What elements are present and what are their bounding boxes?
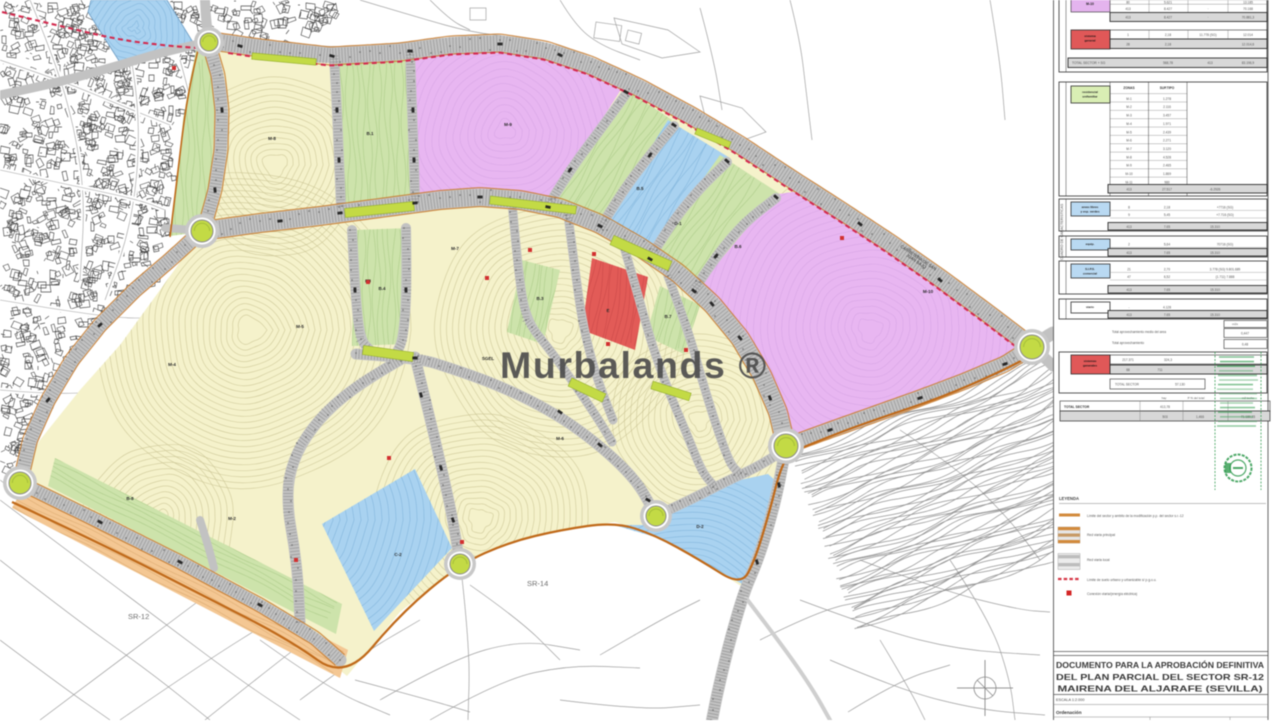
- svg-text:15.310: 15.310: [1210, 313, 1220, 317]
- svg-text:B.1: B.1: [366, 131, 374, 136]
- svg-text:Total aprovechamiento medio de: Total aprovechamiento medio del area: [1112, 330, 1166, 334]
- svg-text:M-1: M-1: [1126, 97, 1132, 101]
- svg-text:413: 413: [1126, 225, 1132, 229]
- svg-text:28: 28: [1126, 43, 1130, 47]
- svg-text:324,3: 324,3: [1164, 358, 1172, 362]
- svg-text:M-3: M-3: [1126, 114, 1132, 118]
- svg-text:568,78: 568,78: [1163, 61, 1173, 65]
- svg-text:(1.711) 7.888: (1.711) 7.888: [1216, 275, 1235, 279]
- svg-text:LEYENDA: LEYENDA: [1059, 496, 1079, 501]
- svg-text:S.I.P.S.: S.I.P.S.: [1085, 267, 1095, 271]
- svg-text:2.439: 2.439: [1163, 130, 1171, 134]
- svg-text:DEL PLAN PARCIAL DEL SECTOR SR: DEL PLAN PARCIAL DEL SECTOR SR-12: [1056, 673, 1265, 682]
- svg-text:D-1: D-1: [674, 221, 682, 226]
- svg-text:CUADRO DE CARACTERISTICAS: CUADRO DE CARACTERISTICAS: [1060, 203, 1064, 260]
- svg-text:980: 980: [1164, 180, 1170, 184]
- svg-text:413: 413: [1125, 7, 1131, 11]
- svg-text:M-6: M-6: [1126, 139, 1132, 143]
- svg-text:1.869: 1.869: [1163, 172, 1171, 176]
- svg-text:+7716 (SG): +7716 (SG): [1217, 206, 1234, 210]
- svg-text:15.310: 15.310: [1210, 225, 1220, 229]
- svg-text:B.5: B.5: [636, 186, 644, 191]
- svg-text:1: 1: [1127, 33, 1129, 37]
- svg-text:B.4: B.4: [378, 286, 386, 291]
- svg-text:M-7: M-7: [451, 246, 459, 251]
- svg-text:4.528: 4.528: [1163, 155, 1171, 159]
- svg-text:+7.716 (SG): +7.716 (SG): [1216, 213, 1233, 217]
- svg-text:sistemas: sistemas: [1084, 359, 1097, 363]
- svg-text:Conexión viaria/(energía eléc: Conexión viaria/(energía eléctrica): [1087, 592, 1137, 596]
- svg-text:1,466: 1,466: [1196, 415, 1204, 419]
- svg-text:general: general: [1084, 39, 1095, 43]
- svg-text:M-7: M-7: [1126, 147, 1132, 151]
- svg-text:Ordenación: Ordenación: [1056, 710, 1082, 715]
- svg-text:C-2: C-2: [394, 552, 402, 557]
- svg-text:Límite de suelo urbano y urban: Límite de suelo urbano y urbanizable s/ …: [1087, 578, 1157, 582]
- svg-text:M-4: M-4: [1126, 122, 1132, 126]
- svg-text:413: 413: [1126, 313, 1132, 317]
- svg-text:y esp. verdes: y esp. verdes: [1080, 210, 1099, 214]
- svg-text:sistema: sistema: [1084, 34, 1096, 38]
- svg-text:2.116: 2.116: [1163, 105, 1171, 109]
- svg-text:3.120: 3.120: [1163, 147, 1171, 151]
- svg-text:3.778 (SG) 9.801.689: 3.778 (SG) 9.801.689: [1210, 268, 1241, 272]
- svg-text:70716 (SG): 70716 (SG): [1217, 243, 1233, 247]
- svg-text:B.6: B.6: [734, 244, 742, 249]
- svg-text:47: 47: [1127, 275, 1131, 279]
- svg-text:hay: hay: [1162, 396, 1167, 400]
- svg-text:7.65: 7.65: [1164, 313, 1170, 317]
- svg-text:areas libres: areas libres: [1082, 205, 1099, 209]
- svg-text:12.014,6: 12.014,6: [1242, 43, 1255, 47]
- svg-text:·: ·: [1207, 16, 1208, 20]
- svg-text:-: -: [1128, 306, 1129, 310]
- svg-text:M-5: M-5: [1126, 130, 1132, 134]
- svg-text:8.427: 8.427: [1164, 16, 1172, 20]
- svg-text:7.65: 7.65: [1164, 225, 1170, 229]
- svg-text:9: 9: [1128, 213, 1130, 217]
- svg-text:2,18: 2,18: [1165, 43, 1171, 47]
- svg-text:TOTAL SECTOR + SG: TOTAL SECTOR + SG: [1072, 61, 1106, 65]
- svg-text:7.65: 7.65: [1164, 288, 1170, 292]
- svg-text:SGEL: SGEL: [482, 356, 495, 361]
- svg-text:M-10: M-10: [1086, 2, 1094, 6]
- svg-text:8.427: 8.427: [1164, 7, 1172, 11]
- svg-text:M-2: M-2: [228, 516, 236, 521]
- svg-text:SR-14: SR-14: [527, 579, 548, 588]
- svg-text:equip.: equip.: [1086, 242, 1095, 246]
- svg-text:27.517: 27.517: [1162, 188, 1172, 192]
- svg-text:generales: generales: [1083, 364, 1097, 368]
- svg-text:70.881,3: 70.881,3: [1242, 16, 1255, 20]
- svg-text:M-8: M-8: [268, 136, 276, 141]
- svg-text:ESCALA 1:2.000: ESCALA 1:2.000: [1056, 698, 1085, 702]
- svg-text:M-8: M-8: [1126, 155, 1132, 159]
- svg-text:83.196,9: 83.196,9: [1242, 61, 1255, 65]
- svg-text:E: E: [606, 308, 609, 313]
- svg-text:217.371: 217.371: [1122, 358, 1134, 362]
- svg-text:ZONAS: ZONAS: [1123, 86, 1134, 90]
- svg-text:m2s: m2s: [1232, 322, 1238, 326]
- svg-text:5,45: 5,45: [1164, 213, 1170, 217]
- svg-text:-6.2926: -6.2926: [1210, 188, 1221, 192]
- svg-text:B-8: B-8: [126, 496, 134, 501]
- svg-text:2,70: 2,70: [1164, 268, 1170, 272]
- svg-text:503: 503: [1162, 415, 1168, 419]
- svg-text:6,52: 6,52: [1164, 275, 1170, 279]
- svg-text:TOTAL SECTOR: TOTAL SECTOR: [1115, 383, 1140, 387]
- svg-text:413: 413: [1207, 61, 1213, 65]
- svg-text:12.014: 12.014: [1243, 33, 1253, 37]
- svg-text:413: 413: [1126, 251, 1132, 255]
- svg-text:B.3: B.3: [536, 296, 544, 301]
- svg-text:M-4: M-4: [168, 362, 176, 367]
- svg-text:Red viaria principal: Red viaria principal: [1087, 533, 1115, 537]
- svg-text:0,48: 0,48: [1242, 343, 1248, 347]
- svg-text:M-6: M-6: [556, 436, 564, 441]
- svg-text:70.168: 70.168: [1243, 7, 1253, 11]
- svg-text:SR-12: SR-12: [128, 612, 149, 621]
- svg-text:80: 80: [1126, 0, 1130, 4]
- svg-text:13.185: 13.185: [1243, 0, 1253, 4]
- svg-text:7.65: 7.65: [1164, 251, 1170, 255]
- svg-text:0,447: 0,447: [1241, 332, 1249, 336]
- svg-text:Red viaria local: Red viaria local: [1087, 558, 1110, 562]
- svg-text:413: 413: [1125, 16, 1131, 20]
- svg-text:MAIRENA DEL ALJARAFE (SEVILLA): MAIRENA DEL ALJARAFE (SEVILLA): [1058, 685, 1263, 694]
- svg-text:1.278: 1.278: [1163, 97, 1171, 101]
- svg-text:3.457: 3.457: [1163, 114, 1171, 118]
- svg-text:8: 8: [1128, 206, 1130, 210]
- svg-text:413,78: 413,78: [1160, 405, 1170, 409]
- svg-text:413: 413: [1126, 188, 1132, 192]
- svg-text:M-10: M-10: [1125, 172, 1132, 176]
- svg-text:Murbalands ®: Murbalands ®: [500, 344, 768, 386]
- svg-text:viario: viario: [1086, 305, 1094, 309]
- svg-text:unifamiliar: unifamiliar: [1082, 95, 1098, 99]
- svg-text:2,18: 2,18: [1164, 206, 1170, 210]
- svg-text:4.128: 4.128: [1163, 306, 1171, 310]
- svg-text:11.778 (SG): 11.778 (SG): [1199, 33, 1216, 37]
- svg-text:TOTAL SECTOR: TOTAL SECTOR: [1064, 405, 1090, 409]
- svg-text:2.271: 2.271: [1163, 139, 1171, 143]
- svg-text:M-2: M-2: [1126, 105, 1132, 109]
- svg-text:57.130: 57.130: [1175, 383, 1185, 387]
- svg-text:M-9: M-9: [504, 122, 512, 127]
- svg-text:M-11: M-11: [1125, 180, 1132, 184]
- svg-text:5.621: 5.621: [1164, 0, 1172, 4]
- svg-text:21: 21: [1127, 268, 1131, 272]
- svg-text:comercial: comercial: [1083, 272, 1097, 276]
- svg-text:SUP.TIPO: SUP.TIPO: [1160, 86, 1175, 90]
- svg-text:2,18: 2,18: [1165, 33, 1171, 37]
- svg-text:2: 2: [1128, 243, 1130, 247]
- svg-text:68: 68: [1126, 368, 1130, 372]
- svg-text:15.310: 15.310: [1210, 288, 1220, 292]
- svg-text:M-5: M-5: [296, 324, 304, 329]
- svg-text:DOCUMENTO PARA LA APROBACIÓN D: DOCUMENTO PARA LA APROBACIÓN DEFINITIVA: [1056, 659, 1264, 670]
- svg-text:B.7: B.7: [664, 314, 672, 319]
- svg-text:M-10: M-10: [923, 289, 934, 294]
- svg-text:1.971: 1.971: [1163, 122, 1171, 126]
- svg-text:P % del total: P % del total: [1188, 396, 1205, 400]
- svg-text:D-2: D-2: [696, 524, 704, 529]
- svg-text:413: 413: [1126, 288, 1132, 292]
- svg-text:Límite del sector y ambito de: Límite del sector y ambito de la modific…: [1087, 514, 1184, 518]
- svg-text:Total aprovechamiento: Total aprovechamiento: [1112, 341, 1144, 345]
- svg-text:2.465: 2.465: [1163, 164, 1171, 168]
- svg-text:15.310: 15.310: [1210, 251, 1220, 255]
- svg-text:711: 711: [1157, 368, 1162, 372]
- svg-text:5,64: 5,64: [1164, 243, 1170, 247]
- svg-text:residencial: residencial: [1082, 90, 1098, 94]
- svg-text:·: ·: [1207, 7, 1208, 11]
- svg-text:M-9: M-9: [1126, 164, 1132, 168]
